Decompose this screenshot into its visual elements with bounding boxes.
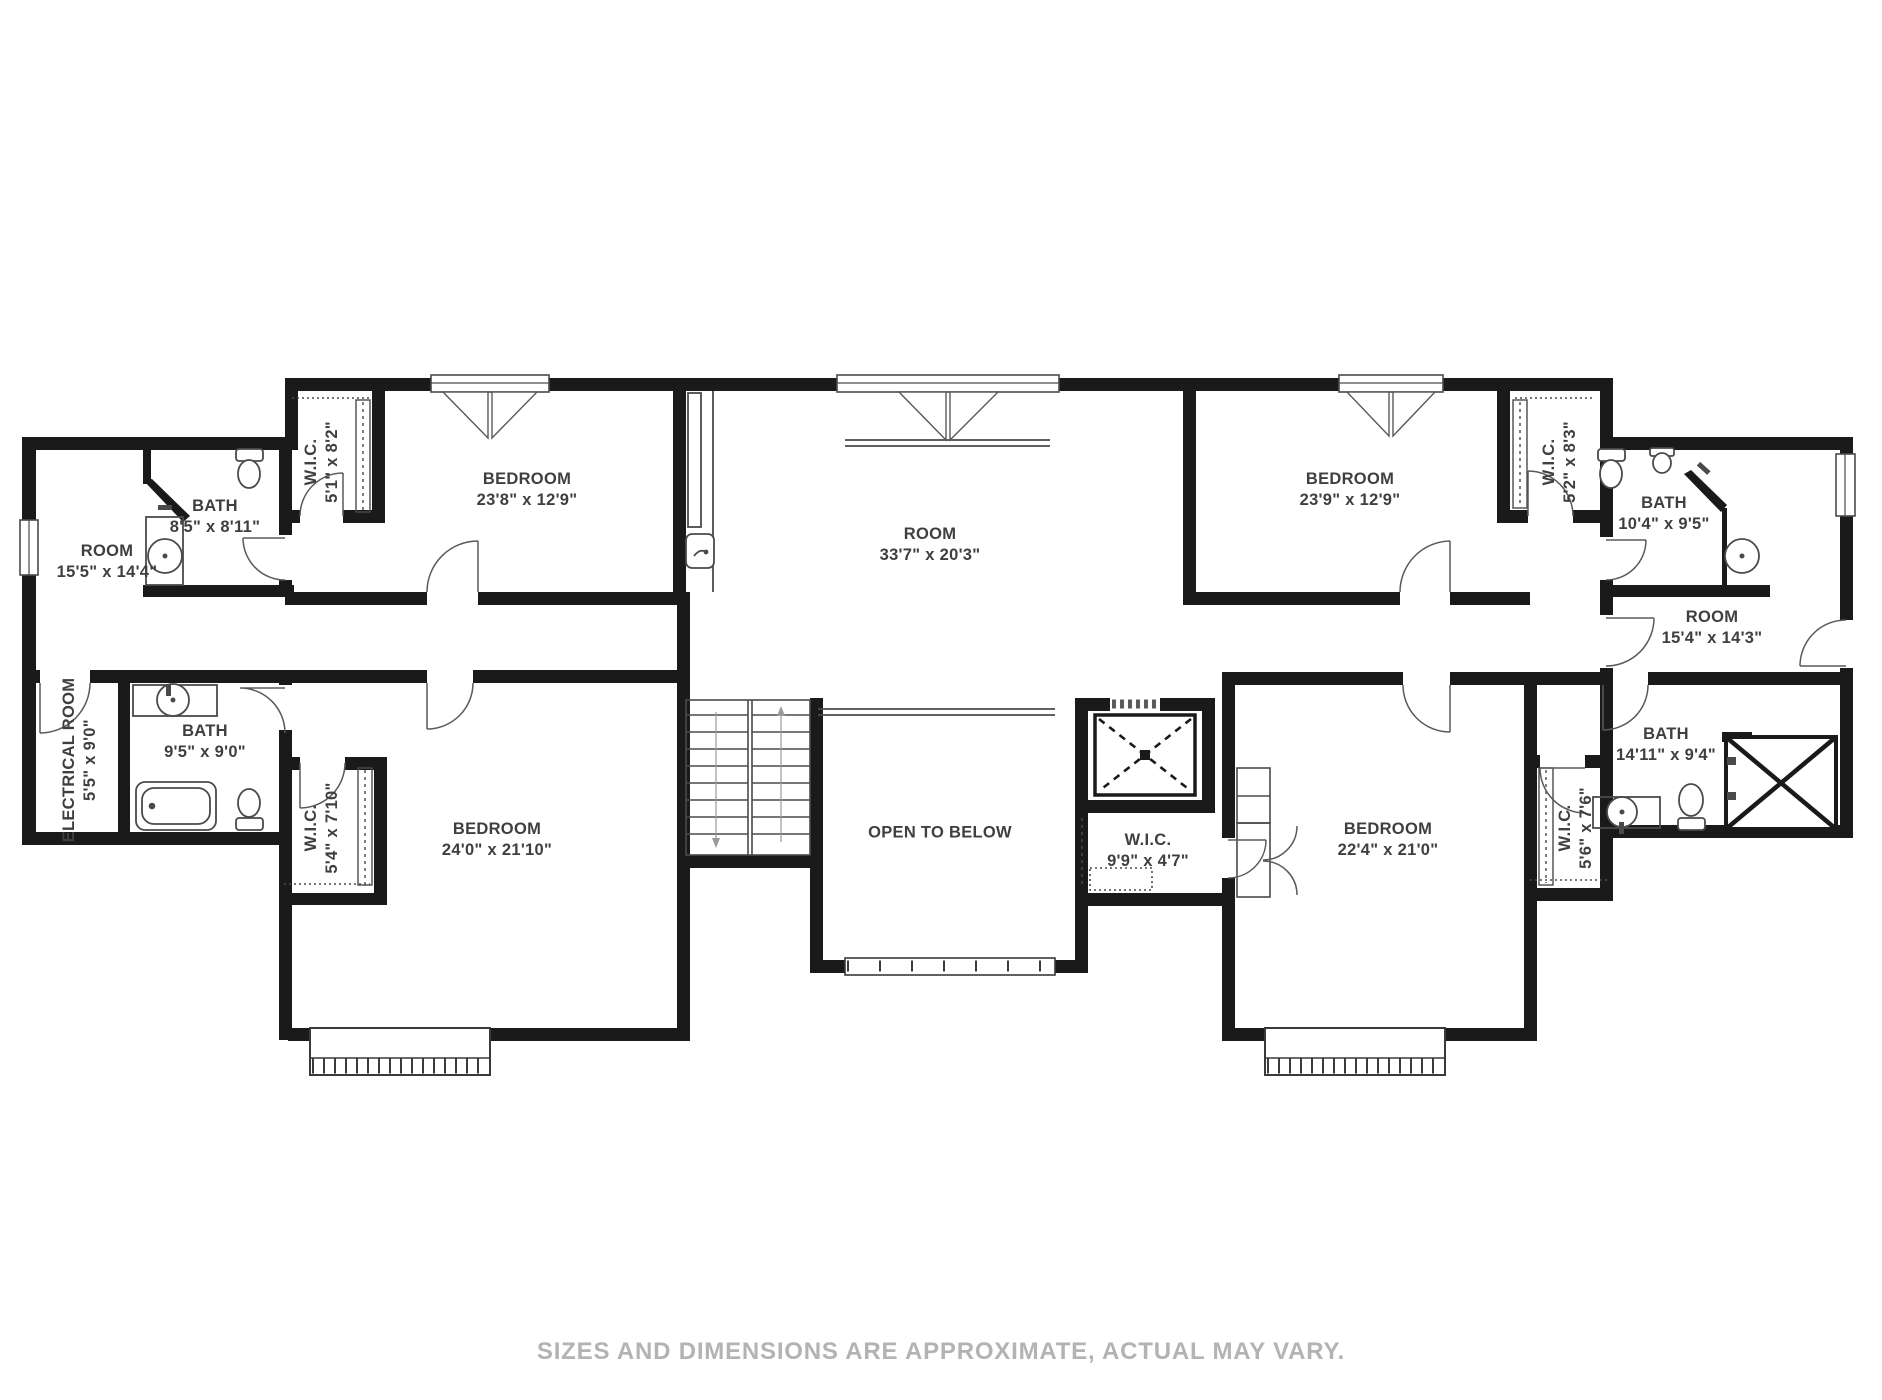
room-label: BEDROOM23'8" x 12'9": [477, 469, 578, 511]
shower-icon: [1722, 732, 1836, 829]
room-label: OPEN TO BELOW: [868, 823, 1012, 844]
closet-shelves: [1237, 768, 1270, 897]
fixtures: [136, 448, 1836, 834]
toilet-icon: [236, 449, 1705, 830]
room-label: BATH14'11" x 9'4": [1616, 724, 1716, 766]
room-label: ROOM15'5" x 14'4": [57, 541, 158, 583]
floorplan-page: ROOM15'5" x 14'4" BATH8'5" x 8'11" W.I.C…: [0, 0, 1882, 1400]
room-label: W.I.C.5'4" x 7'10": [301, 782, 343, 873]
room-label: W.I.C.5'1" x 8'2": [301, 421, 343, 503]
room-label: ROOM33'7" x 20'3": [880, 524, 981, 566]
room-label: W.I.C.5'6" x 7'6": [1555, 787, 1597, 869]
casement-window-icon: [443, 392, 1435, 440]
room-label: W.I.C.5'2" x 8'3": [1539, 421, 1581, 503]
room-label: BEDROOM22'4" x 21'0": [1338, 819, 1439, 861]
floorplan-canvas: [0, 0, 1882, 1400]
wall-sink-icon: [1650, 448, 1674, 473]
faucet-icon: [158, 462, 1711, 834]
disclaimer-text: SIZES AND DIMENSIONS ARE APPROXIMATE, AC…: [0, 1338, 1882, 1366]
stairs: [686, 700, 810, 855]
room-label: W.I.C.9'9" x 4'7": [1107, 830, 1189, 872]
room-label: BEDROOM24'0" x 21'10": [442, 819, 552, 861]
room-label: BATH8'5" x 8'11": [170, 496, 260, 538]
room-label: ELECTRICAL ROOM5'5" x 9'0": [59, 678, 101, 843]
room-label: BATH10'4" x 9'5": [1618, 493, 1709, 535]
bathtub-icon: [136, 782, 216, 830]
room-label: BATH9'5" x 9'0": [164, 721, 246, 763]
water-heater-icon: [686, 534, 714, 568]
elevator-icon: [1095, 715, 1195, 795]
chase-duct: [688, 393, 701, 527]
room-label: BEDROOM23'9" x 12'9": [1300, 469, 1401, 511]
room-label: ROOM15'4" x 14'3": [1662, 607, 1763, 649]
